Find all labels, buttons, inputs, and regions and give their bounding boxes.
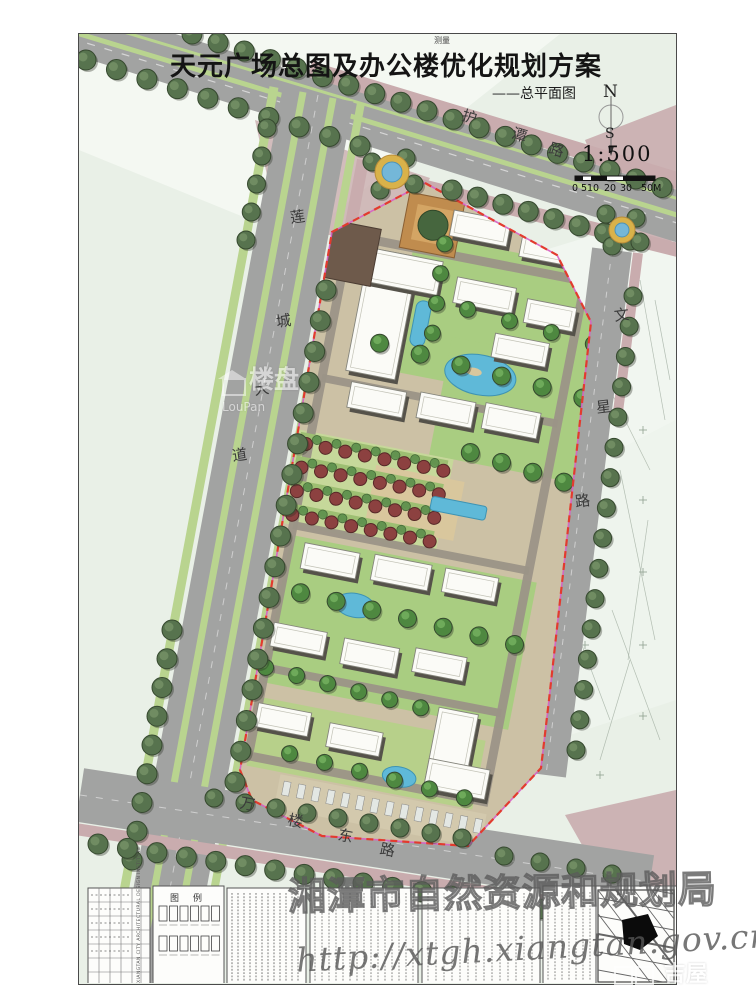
- scale-bar: [575, 176, 655, 181]
- scanned-plan-page: 天元广场总图及办公楼优化规划方案 ——总平面图 测量 N S 1:500 0 5…: [0, 0, 756, 1008]
- title-block-tables: [88, 886, 677, 985]
- circular-plaza-ne: [609, 217, 635, 243]
- circular-fountain-plaza: [375, 155, 409, 189]
- site-plan-canvas: [0, 0, 756, 1008]
- location-key-map: [580, 880, 740, 984]
